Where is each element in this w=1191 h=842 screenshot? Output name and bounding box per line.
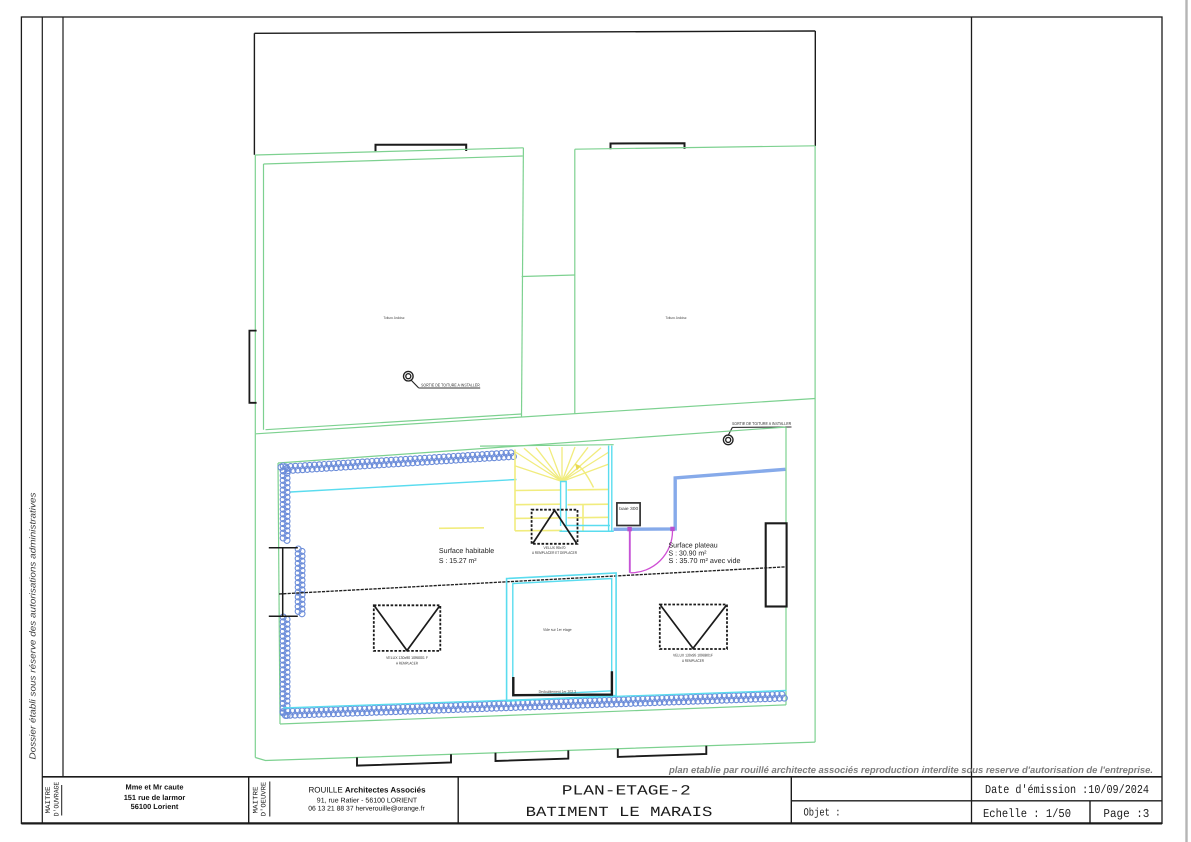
svg-text:Dedoublement 1er 202.3: Dedoublement 1er 202.3 (539, 689, 577, 694)
svg-text:Toiture Ardoise: Toiture Ardoise (666, 316, 687, 320)
svg-text:VELUX 130x90 1098001 F: VELUX 130x90 1098001 F (386, 655, 429, 660)
svg-text:Vide sur 1er etage: Vide sur 1er etage (543, 627, 572, 632)
svg-text:Surface habitable: Surface habitable (439, 546, 494, 555)
svg-text:plan etablie par rouillé archi: plan etablie par rouillé architecte asso… (668, 764, 1153, 775)
svg-text:91, rue Ratier - 56100 LORIENT: 91, rue Ratier - 56100 LORIENT (317, 797, 418, 805)
svg-text:A REMPLACER ET DEPLACER: A REMPLACER ET DEPLACER (532, 550, 577, 555)
svg-text:A REMPLACER: A REMPLACER (396, 661, 418, 666)
svg-text:Dossier établi sous réserve de: Dossier établi sous réserve des autorisa… (28, 492, 38, 760)
svg-text:06 13 21 88 37 herverouille@or: 06 13 21 88 37 herverouille@orange.fr (308, 805, 425, 812)
svg-text:BATIMENT LE MARAIS: BATIMENT LE MARAIS (526, 805, 713, 821)
svg-text:S : 15.27 m²: S : 15.27 m² (439, 556, 477, 565)
svg-text:S : 35.70 m² avec vide: S : 35.70 m² avec vide (669, 556, 741, 565)
svg-text:SORTIE DE TOITURE A INSTALLER: SORTIE DE TOITURE A INSTALLER (421, 383, 480, 388)
svg-text:VELUX 130x95 1098B01F: VELUX 130x95 1098B01F (673, 653, 714, 658)
svg-text:Date d'émission :10/09/2024: Date d'émission :10/09/2024 (985, 783, 1149, 797)
svg-text:PLAN-ETAGE-2: PLAN-ETAGE-2 (562, 783, 691, 799)
svg-text:Page :3: Page :3 (1103, 807, 1149, 821)
svg-text:D'OEUVRE: D'OEUVRE (260, 782, 269, 817)
svg-text:D'OUVRAGE: D'OUVRAGE (53, 782, 62, 817)
svg-text:ROUILLE Architectes Associés: ROUILLE Architectes Associés (308, 785, 426, 794)
svg-text:151 rue de larmor: 151 rue de larmor (124, 793, 186, 802)
svg-text:56100 Lorient: 56100 Lorient (131, 802, 179, 811)
svg-text:Toiture Ardoise: Toiture Ardoise (384, 316, 405, 320)
svg-text:Echelle : 1/50: Echelle : 1/50 (983, 807, 1071, 821)
svg-text:Mme et Mr caute: Mme et Mr caute (126, 783, 184, 792)
svg-text:MAITRE: MAITRE (45, 787, 53, 814)
svg-text:baie 300: baie 300 (619, 506, 639, 511)
svg-text:SORTIE DE TOITURE A INSTALLER: SORTIE DE TOITURE A INSTALLER (732, 421, 791, 426)
svg-text:Objet :: Objet : (804, 808, 841, 820)
svg-text:A REMPLACER: A REMPLACER (682, 658, 704, 663)
svg-text:MAITRE: MAITRE (253, 787, 261, 814)
